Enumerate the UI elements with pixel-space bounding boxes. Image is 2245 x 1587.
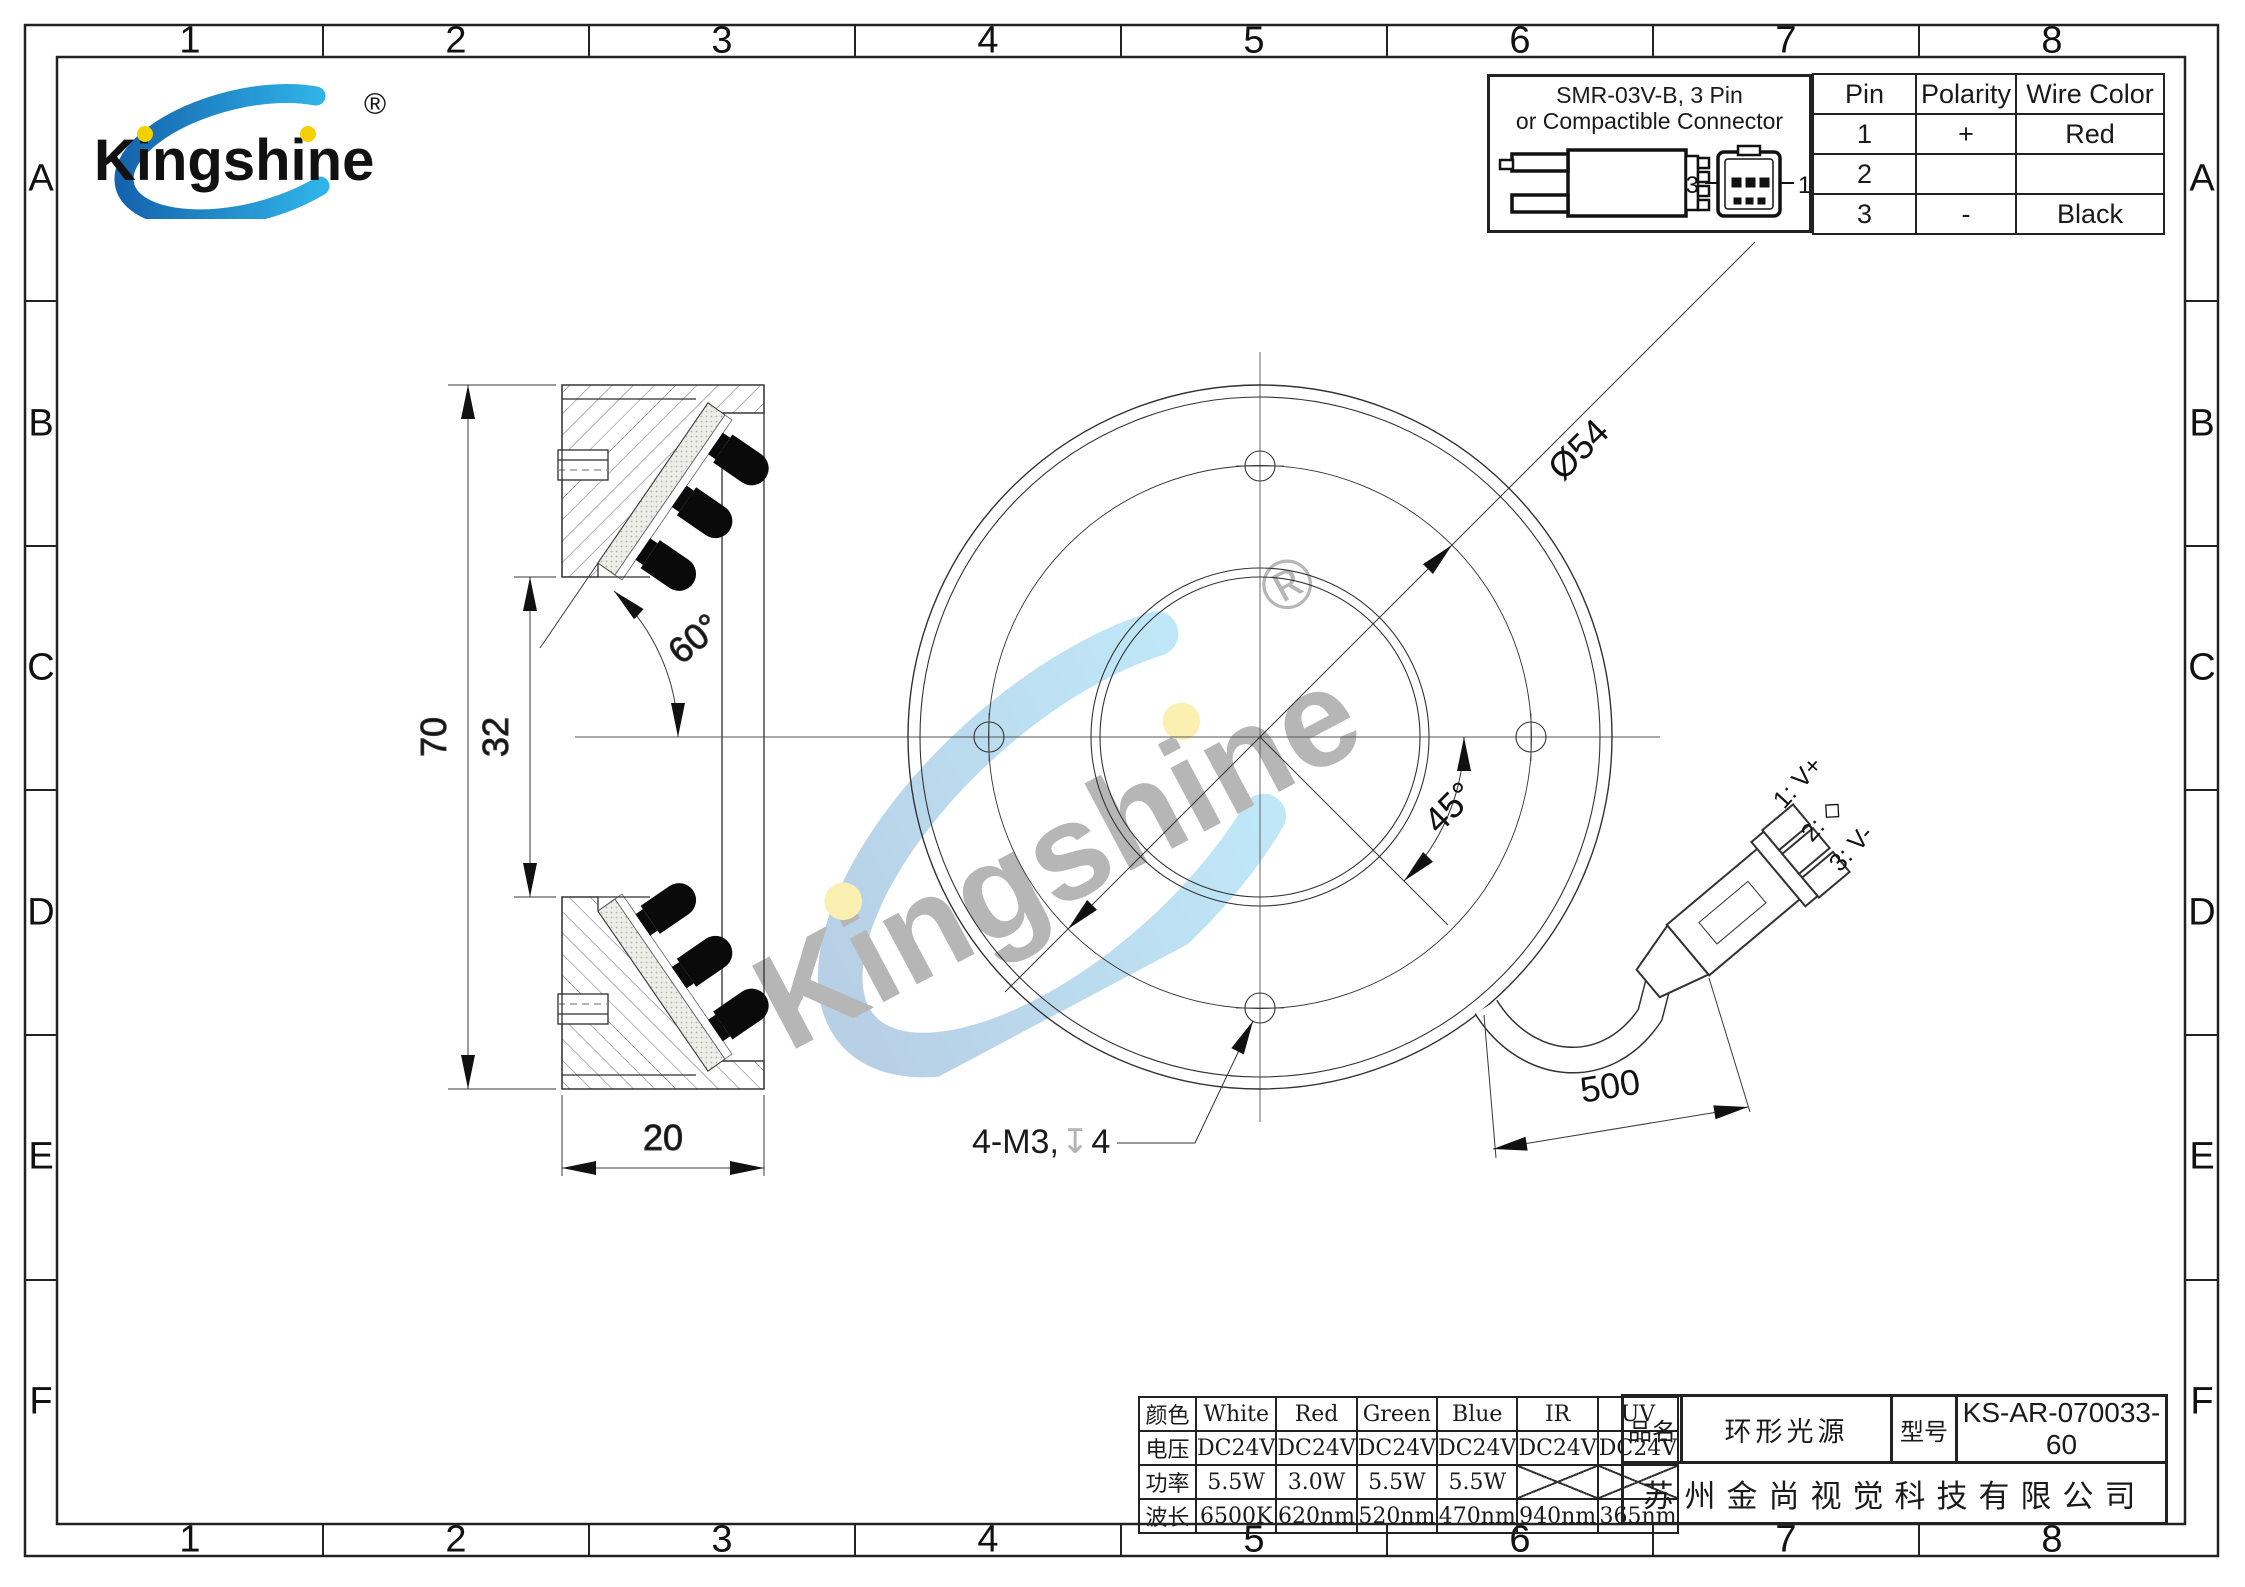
cable-dim-arrows [1492, 1100, 1749, 1156]
spec-cell: 5.5W [1357, 1465, 1437, 1499]
spec-cell: White [1196, 1397, 1276, 1431]
connector-title-line2: or Compactible Connector [1490, 108, 1809, 135]
cable-connector: 500 1: V+ 2: ◇ 3: V- [1484, 751, 1879, 1158]
mounting-hole [1245, 451, 1275, 481]
table-row: 电压 DC24V DC24V DC24V DC24V DC24V DC24V [1139, 1431, 1678, 1465]
grid-row-label: E [2189, 1136, 2214, 1179]
part-name-label: 品名 [1623, 1396, 1682, 1463]
grid-col-label: 1 [179, 1519, 200, 1562]
spec-cell: Green [1357, 1397, 1437, 1431]
grid-col-label: 4 [977, 20, 998, 63]
model-value: KS-AR-070033-60 [1957, 1396, 2167, 1463]
depth-symbol-icon: ↧ [1059, 1123, 1092, 1161]
dim-height: 70 [413, 717, 454, 757]
grid-col-label: 2 [445, 20, 466, 63]
spec-cell: 6500K [1196, 1499, 1276, 1533]
spec-cell: 470nm [1437, 1499, 1517, 1533]
title-block: 品名 环形光源 型号 KS-AR-070033-60 苏州金尚视觉科技有限公司 [1621, 1394, 2168, 1525]
spec-cell: DC24V [1196, 1431, 1276, 1465]
spec-cell: DC24V [1276, 1431, 1356, 1465]
grid-row-label: C [27, 647, 54, 690]
company-name: 苏州金尚视觉科技有限公司 [1623, 1463, 2167, 1524]
dim-ring-width: 20 [643, 1117, 683, 1158]
kingshine-logo: Kingshine K ® [78, 74, 398, 219]
spec-cell: 620nm [1276, 1499, 1356, 1533]
model-label: 型号 [1892, 1396, 1957, 1463]
spec-cell: Blue [1437, 1397, 1517, 1431]
part-name-value: 环形光源 [1682, 1396, 1892, 1463]
logo-k: K [94, 128, 136, 193]
kingshine-watermark-svg: Kingshine K ® [638, 498, 1462, 1152]
spec-label: 功率 [1139, 1465, 1196, 1499]
spec-cell-crossed [1517, 1465, 1597, 1499]
section-top-block [558, 385, 775, 598]
polarity-cell [1916, 154, 2016, 194]
wirecolor-cell [2016, 154, 2164, 194]
wirecolor-cell: Black [2016, 194, 2164, 234]
connector-plug [1620, 804, 1850, 1017]
grid-row-label: C [2188, 647, 2215, 690]
connector-info-box: SMR-03V-B, 3 Pin or Compactible Connecto… [1487, 74, 1812, 233]
grid-col-label: 7 [1775, 20, 1796, 63]
thread-note-text: 4-M3, [972, 1123, 1059, 1161]
thread-note: 4-M3,↧4 [972, 1122, 1110, 1162]
wire-label-1: 1: V+ [1768, 751, 1828, 814]
dim-bolt-circle: Ø54 [1540, 411, 1617, 488]
polarity-header: Polarity [1916, 74, 2016, 114]
connector-title-line1: SMR-03V-B, 3 Pin [1490, 82, 1809, 109]
dim-led-angle: 60° [660, 605, 728, 671]
spec-cell: Red [1276, 1397, 1356, 1431]
table-row: 功率 5.5W 3.0W 5.5W 5.5W [1139, 1465, 1678, 1499]
pin-cell: 1 [1813, 114, 1916, 154]
grid-col-label: 3 [711, 20, 732, 63]
spec-cell: 5.5W [1437, 1465, 1517, 1499]
spec-table: 颜色 White Red Green Blue IR UV 电压 DC24V D… [1138, 1396, 1679, 1534]
spec-cell: 940nm [1517, 1499, 1597, 1533]
spec-label: 颜色 [1139, 1397, 1196, 1431]
grid-col-label: 4 [977, 1519, 998, 1562]
spec-label: 电压 [1139, 1431, 1196, 1465]
kingshine-watermark: Kingshine K ® [638, 498, 1462, 1152]
drawing-sheet: Kingshine K ® Kingshine K ® 1 2 3 4 5 6 … [0, 0, 2245, 1587]
polarity-cell: + [1916, 114, 2016, 154]
pin-cell: 3 [1813, 194, 1916, 234]
spec-cell: DC24V [1357, 1431, 1437, 1465]
registered-icon: ® [364, 88, 386, 121]
spec-cell: 3.0W [1276, 1465, 1356, 1499]
grid-row-label: D [2188, 892, 2215, 935]
spec-cell: DC24V [1437, 1431, 1517, 1465]
logo-text: Kingshine [94, 128, 374, 193]
grid-col-label: 5 [1243, 20, 1264, 63]
spec-cell: 5.5W [1196, 1465, 1276, 1499]
pin-header: Pin [1813, 74, 1916, 114]
table-row: 苏州金尚视觉科技有限公司 [1623, 1463, 2167, 1524]
spec-cell: IR [1517, 1397, 1597, 1431]
table-row: 品名 环形光源 型号 KS-AR-070033-60 [1623, 1396, 2167, 1463]
table-row: Pin Polarity Wire Color [1813, 74, 2164, 114]
dim-inner-opening: 32 [475, 717, 516, 757]
table-row: 波长 6500K 620nm 520nm 470nm 940nm 365nm [1139, 1499, 1678, 1533]
registered-icon: ® [1246, 537, 1329, 631]
grid-row-label: D [27, 892, 54, 935]
grid-row-label: F [29, 1381, 52, 1424]
pin-table: Pin Polarity Wire Color 1 + Red 2 3 - Bl… [1812, 73, 2165, 235]
dim-cable-length: 500 [1577, 1061, 1643, 1111]
grid-col-label: 2 [445, 1519, 466, 1562]
i-dot-icon [300, 126, 316, 142]
grid-row-label: F [2190, 1381, 2213, 1424]
spec-cell: DC24V [1517, 1431, 1597, 1465]
table-row: 1 + Red [1813, 114, 2164, 154]
wirecolor-cell: Red [2016, 114, 2164, 154]
led-lamp [633, 429, 775, 597]
grid-row-label: A [28, 158, 53, 201]
dimension-arrows [461, 385, 764, 1175]
grid-row-label: A [2189, 158, 2214, 201]
mounting-hole [1245, 993, 1275, 1023]
table-row: 2 [1813, 154, 2164, 194]
i-dot-icon [137, 126, 153, 142]
grid-col-label: 6 [1509, 20, 1530, 63]
polarity-cell: - [1916, 194, 2016, 234]
table-row: 3 - Black [1813, 194, 2164, 234]
grid-col-label: 1 [179, 20, 200, 63]
grid-col-label: 3 [711, 1519, 732, 1562]
pin-cell: 2 [1813, 154, 1916, 194]
kingshine-logo-svg: Kingshine K ® [78, 74, 398, 219]
thread-depth-value: 4 [1091, 1123, 1110, 1161]
spec-label: 波长 [1139, 1499, 1196, 1533]
spec-cell: 520nm [1357, 1499, 1437, 1533]
grid-row-label: B [28, 403, 53, 446]
section-dimensions: 70 32 20 60° [413, 385, 764, 1176]
wirecolor-header: Wire Color [2016, 74, 2164, 114]
wire-label-2: 2: ◇ [1796, 793, 1849, 847]
mounting-hole [1516, 722, 1546, 752]
grid-col-label: 8 [2041, 20, 2062, 63]
grid-row-label: E [28, 1136, 53, 1179]
table-row: 颜色 White Red Green Blue IR UV [1139, 1397, 1678, 1431]
grid-row-label: B [2189, 403, 2214, 446]
wire-label-3: 3: V- [1824, 820, 1879, 877]
